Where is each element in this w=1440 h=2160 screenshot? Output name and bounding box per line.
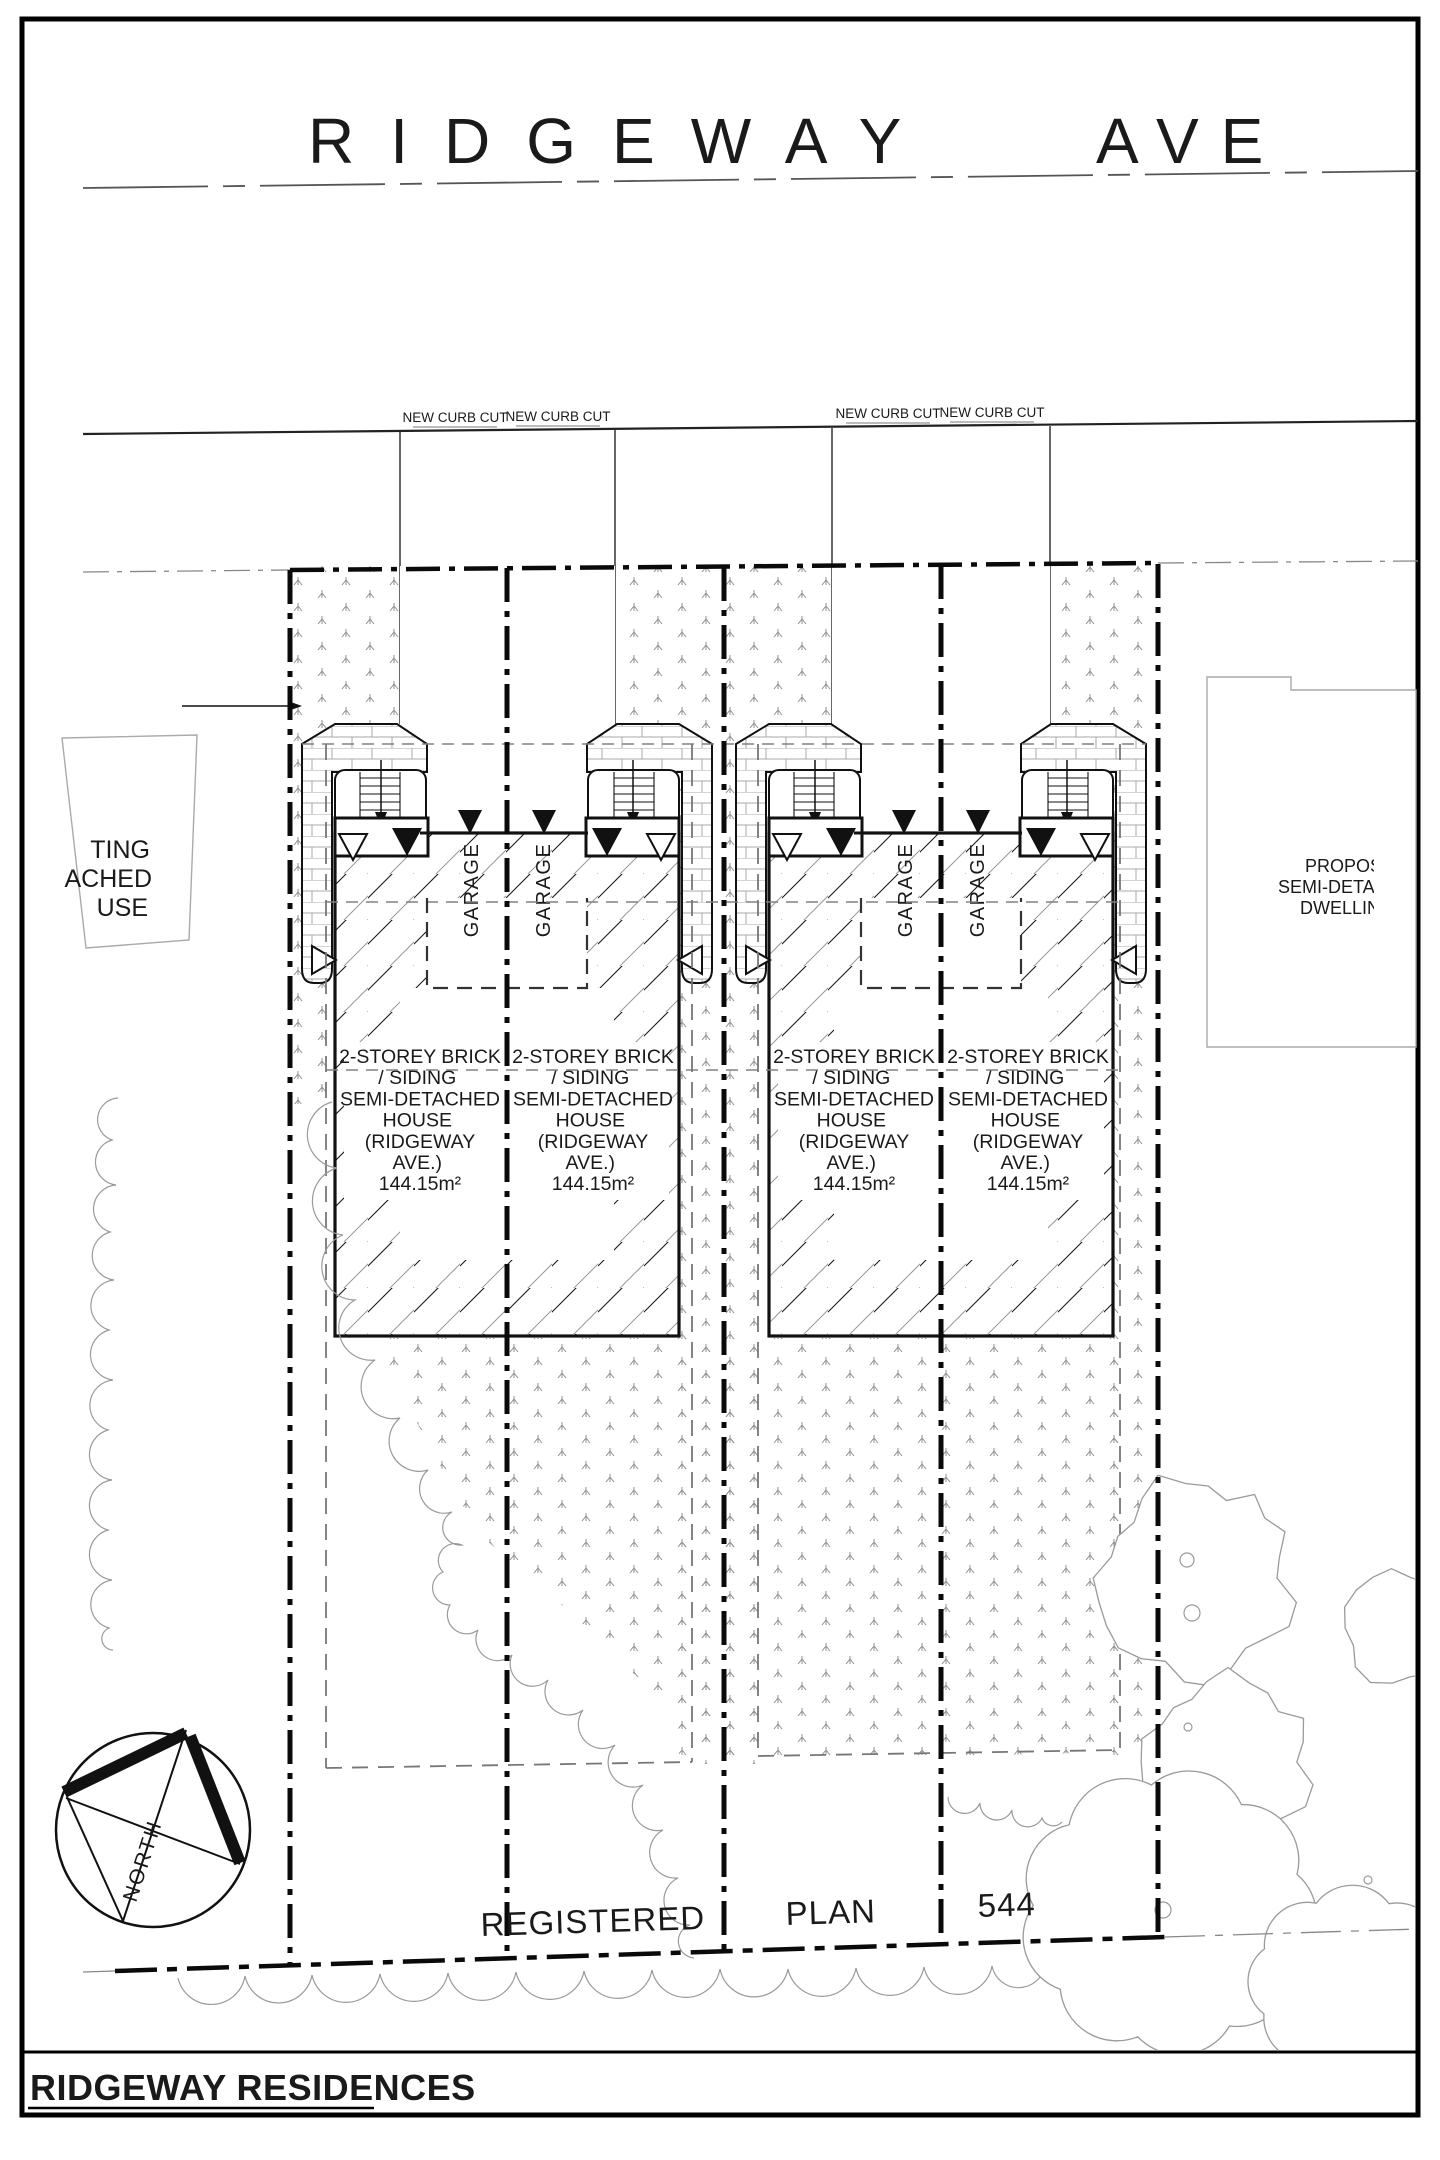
neighbor-right-house: PROPOS SEMI-DETA DWELLIN [1207, 677, 1416, 1047]
garage-label-4: GARAGE [967, 843, 989, 938]
neighbor-left-house: TING ACHED USE [62, 735, 197, 948]
street-name-part1: RIDGEWAY [308, 105, 937, 177]
curb-cut-label-3: NEW CURB CUT [836, 406, 941, 421]
street-name-part2: AVE [1096, 105, 1285, 177]
neighbor-left-text-1: TING [90, 836, 150, 864]
plan-note-word3: 544 [977, 1885, 1036, 1924]
garage-label-1: GARAGE [461, 843, 483, 938]
site-plan-drawing: RIDGEWAY RESIDENCES RIDGEWAY AVE NEW CUR… [0, 0, 1440, 2160]
plan-note-word2: PLAN [785, 1892, 876, 1932]
site-plan-page: RIDGEWAY RESIDENCES RIDGEWAY AVE NEW CUR… [0, 0, 1440, 2160]
title-block-project-name: RIDGEWAY RESIDENCES [30, 2067, 476, 2108]
garage-label-3: GARAGE [895, 843, 917, 938]
neighbor-right-text-3: DWELLIN [1300, 898, 1380, 918]
street-title: RIDGEWAY AVE [308, 105, 1285, 177]
neighbor-right-text-1: PROPOS [1305, 856, 1382, 876]
neighbor-right-text-2: SEMI-DETA [1278, 877, 1375, 897]
garage-label-2: GARAGE [533, 843, 555, 938]
neighbor-left-text-2: ACHED [64, 865, 152, 893]
curb-cut-label-1: NEW CURB CUT [403, 410, 508, 425]
curb-cut-label-2: NEW CURB CUT [506, 409, 611, 424]
plan-note-word1: REGISTERED [480, 1899, 706, 1943]
curb-cut-label-4: NEW CURB CUT [940, 405, 1045, 420]
neighbor-left-text-3: USE [97, 894, 148, 922]
